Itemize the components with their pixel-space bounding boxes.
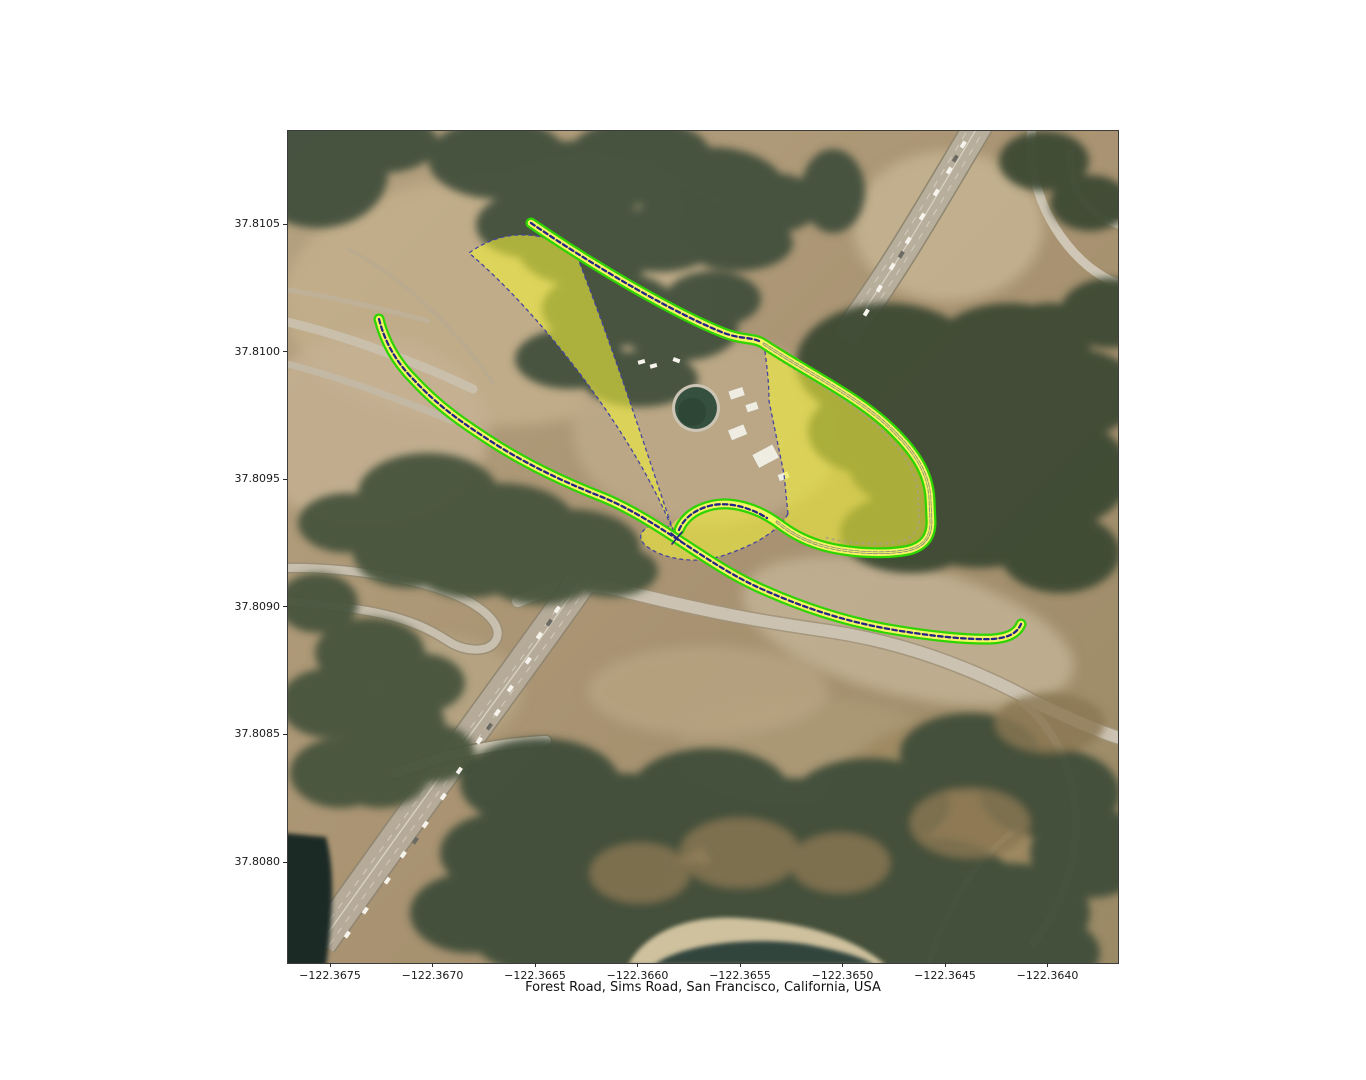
x-tick-mark [637, 963, 638, 967]
x-tick-mark [740, 963, 741, 967]
satellite-basemap [288, 131, 1118, 963]
y-tick-label: 37.8090 [220, 600, 280, 613]
y-tick-label: 37.8100 [220, 345, 280, 358]
x-tick-mark [842, 963, 843, 967]
y-tick-mark [283, 224, 287, 225]
x-tick-mark [535, 963, 536, 967]
y-tick-label: 37.8085 [220, 727, 280, 740]
y-tick-mark [283, 479, 287, 480]
axis-xlabel: Forest Road, Sims Road, San Francisco, C… [287, 980, 1119, 995]
x-tick-mark [1047, 963, 1048, 967]
x-tick-mark [432, 963, 433, 967]
x-tick-mark [330, 963, 331, 967]
y-tick-mark [283, 734, 287, 735]
map-axes [287, 130, 1119, 964]
y-tick-label: 37.8105 [220, 217, 280, 230]
y-tick-mark [283, 862, 287, 863]
y-tick-label: 37.8080 [220, 855, 280, 868]
pond [672, 384, 720, 432]
x-tick-mark [945, 963, 946, 967]
y-tick-mark [283, 351, 287, 352]
y-tick-label: 37.8095 [220, 472, 280, 485]
creek-water [288, 833, 332, 963]
matplotlib-figure: −122.3675−122.3670−122.3665−122.3660−122… [0, 0, 1366, 1080]
y-tick-mark [283, 606, 287, 607]
